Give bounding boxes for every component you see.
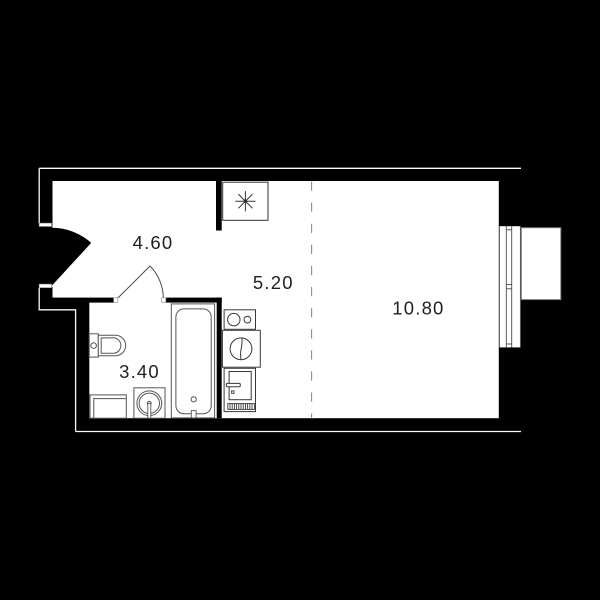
svg-text:10.80: 10.80 xyxy=(392,298,444,319)
svg-text:5.20: 5.20 xyxy=(253,272,294,293)
svg-text:3.40: 3.40 xyxy=(119,361,160,382)
svg-text:4.60: 4.60 xyxy=(133,232,174,253)
